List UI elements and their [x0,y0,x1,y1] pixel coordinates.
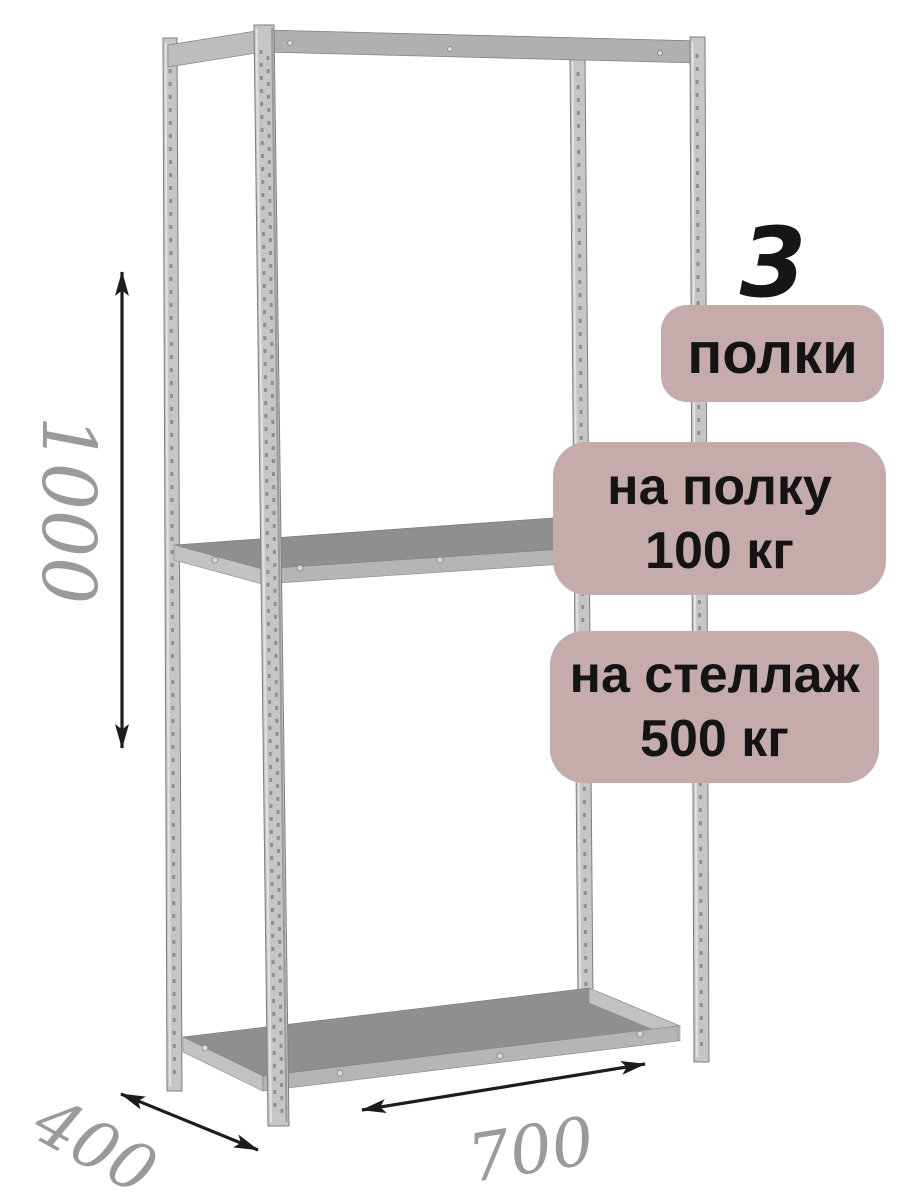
product-image: 1000 400 700 3 полки на полку 100 кг на … [0,0,900,1200]
height-dimension-label: 1000 [25,416,111,604]
per-shelf-load-line2: 100 кг [645,519,794,583]
shelf-count-number: 3 [740,207,807,319]
rack-post-back-left [163,38,182,1091]
shelf-count-badge: полки [661,305,884,402]
rack-shelf-bottom [183,988,680,1091]
shelf-count-badge-label: полки [687,320,858,387]
per-rack-load-line1: на стеллаж [570,643,860,707]
per-rack-load-line2: 500 кг [640,707,789,771]
rack-shelf-top [168,30,699,67]
per-shelf-load-badge: на полку 100 кг [553,442,886,595]
per-shelf-load-line1: на полку [607,455,832,519]
shelving-rack-illustration [0,0,900,1200]
per-rack-load-badge: на стеллаж 500 кг [550,631,879,783]
